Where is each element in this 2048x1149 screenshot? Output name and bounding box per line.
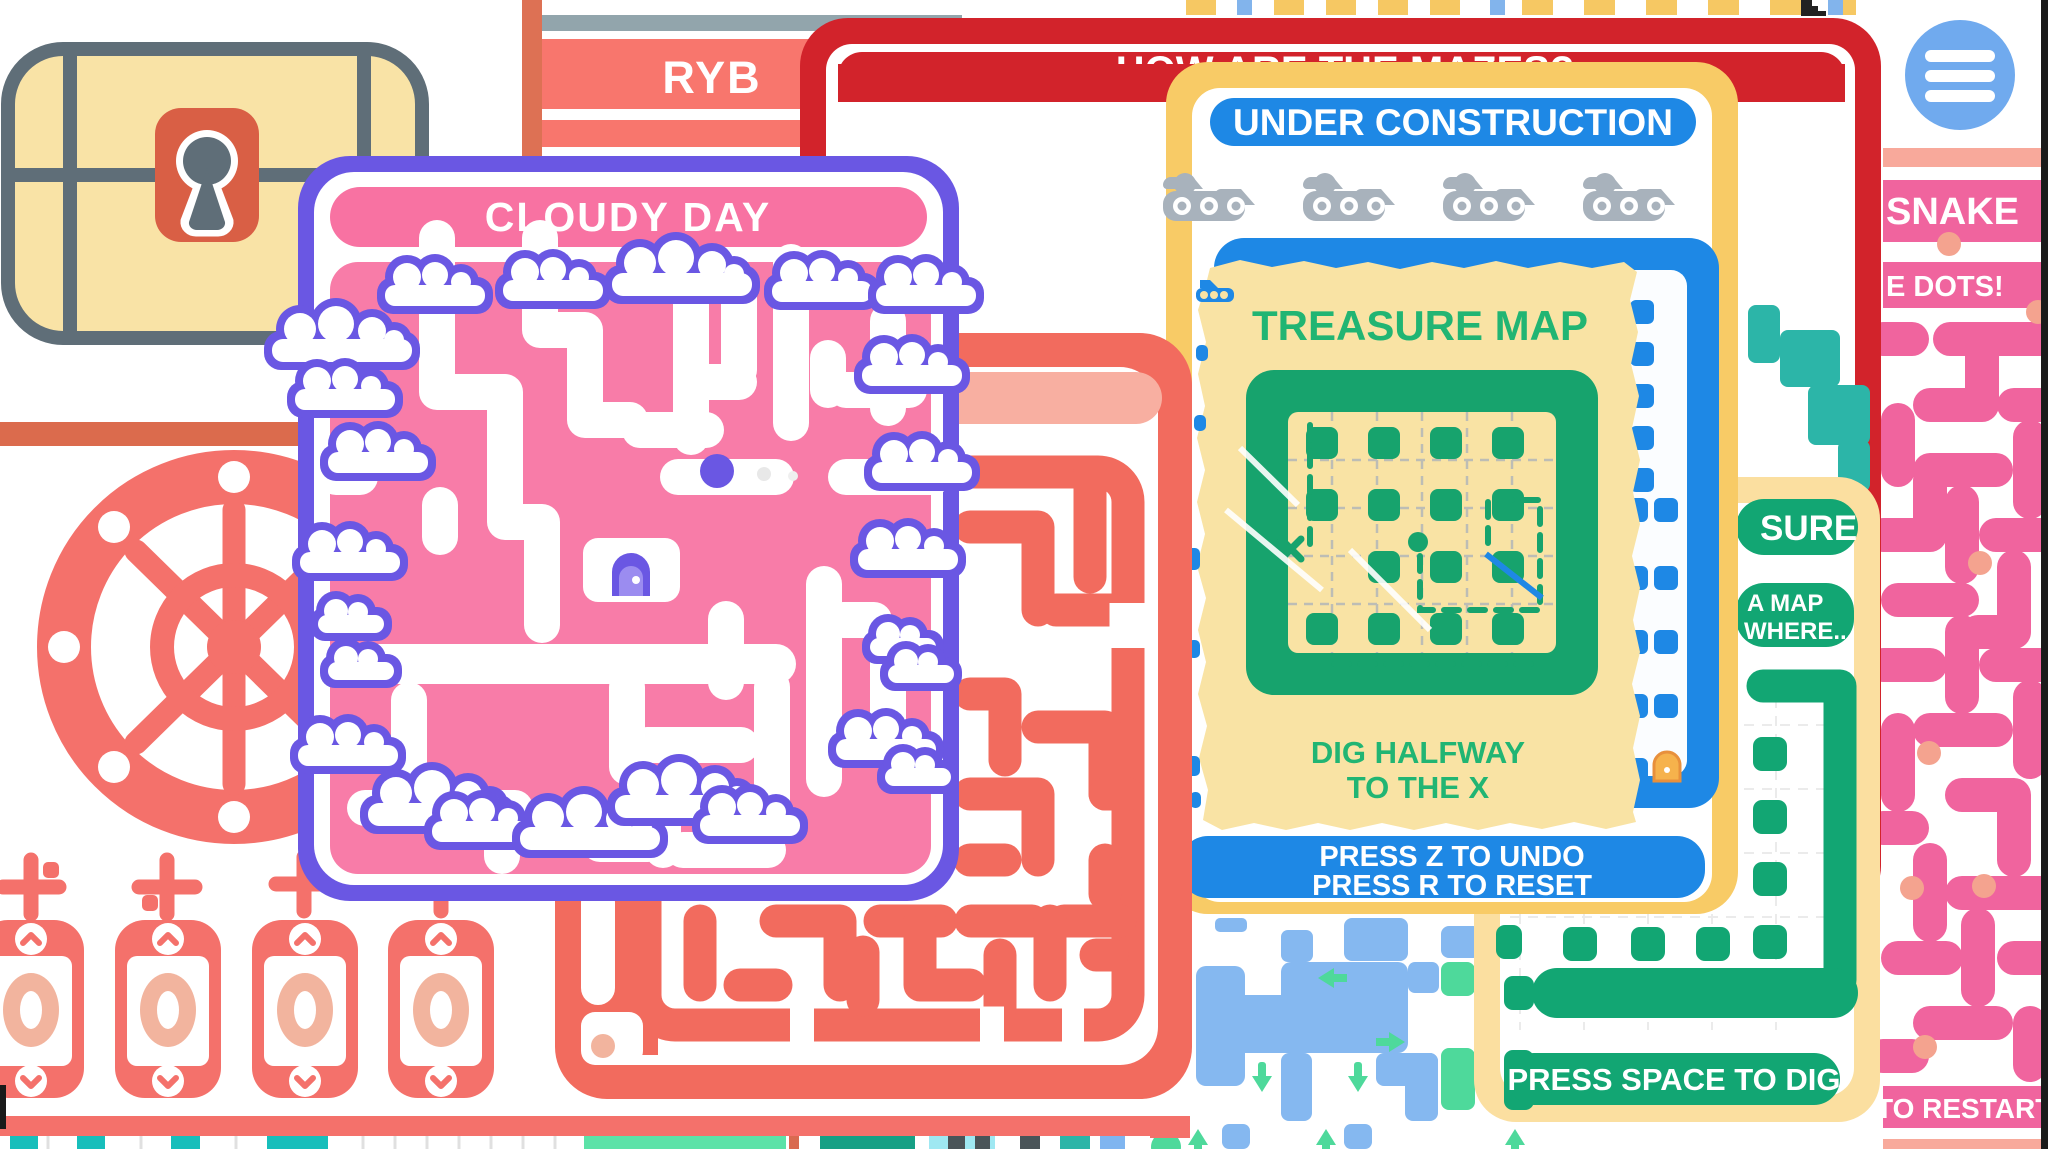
svg-text:DIG HALFWAY: DIG HALFWAY <box>1311 735 1525 770</box>
svg-text:WHERE...: WHERE... <box>1744 618 1853 645</box>
svg-text:SNAKE: SNAKE <box>1886 191 2019 233</box>
svg-text:TO RESTART: TO RESTART <box>1876 1093 2048 1124</box>
svg-text:E DOTS!: E DOTS! <box>1886 271 2004 303</box>
svg-text:SURE: SURE <box>1760 509 1857 548</box>
svg-text:A MAP: A MAP <box>1747 590 1823 617</box>
svg-text:UNDER CONSTRUCTION: UNDER CONSTRUCTION <box>1233 102 1673 143</box>
svg-text:PRESS R TO RESET: PRESS R TO RESET <box>1312 870 1592 902</box>
svg-text:TO THE X: TO THE X <box>1347 770 1490 805</box>
svg-text:TREASURE MAP: TREASURE MAP <box>1252 302 1588 349</box>
svg-text:PRESS Z TO UNDO: PRESS Z TO UNDO <box>1319 841 1584 873</box>
svg-text:RYB: RYB <box>662 52 761 103</box>
svg-text:PRESS SPACE TO DIG: PRESS SPACE TO DIG <box>1507 1062 1840 1097</box>
